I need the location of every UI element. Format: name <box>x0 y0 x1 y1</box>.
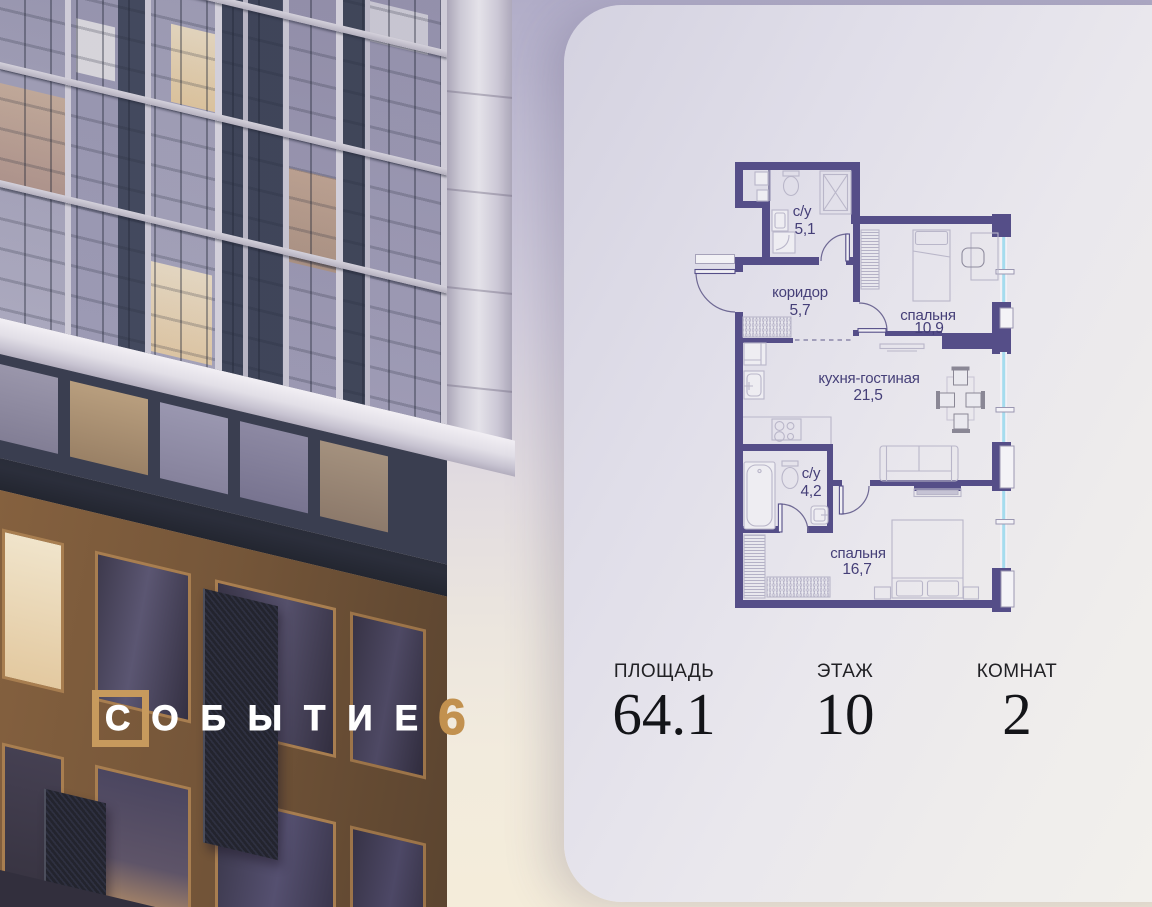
svg-text:с/у: с/у <box>802 465 821 482</box>
svg-text:кухня-гостиная: кухня-гостиная <box>818 370 919 387</box>
svg-text:с/у: с/у <box>793 203 812 220</box>
svg-text:21,5: 21,5 <box>853 387 882 404</box>
svg-text:коридор: коридор <box>772 284 828 301</box>
svg-text:4,2: 4,2 <box>801 483 822 500</box>
svg-text:10,9: 10,9 <box>914 320 943 337</box>
svg-text:спальня: спальня <box>830 545 886 562</box>
svg-text:5,7: 5,7 <box>790 302 811 319</box>
svg-text:5,1: 5,1 <box>795 221 816 238</box>
svg-text:16,7: 16,7 <box>842 561 871 578</box>
